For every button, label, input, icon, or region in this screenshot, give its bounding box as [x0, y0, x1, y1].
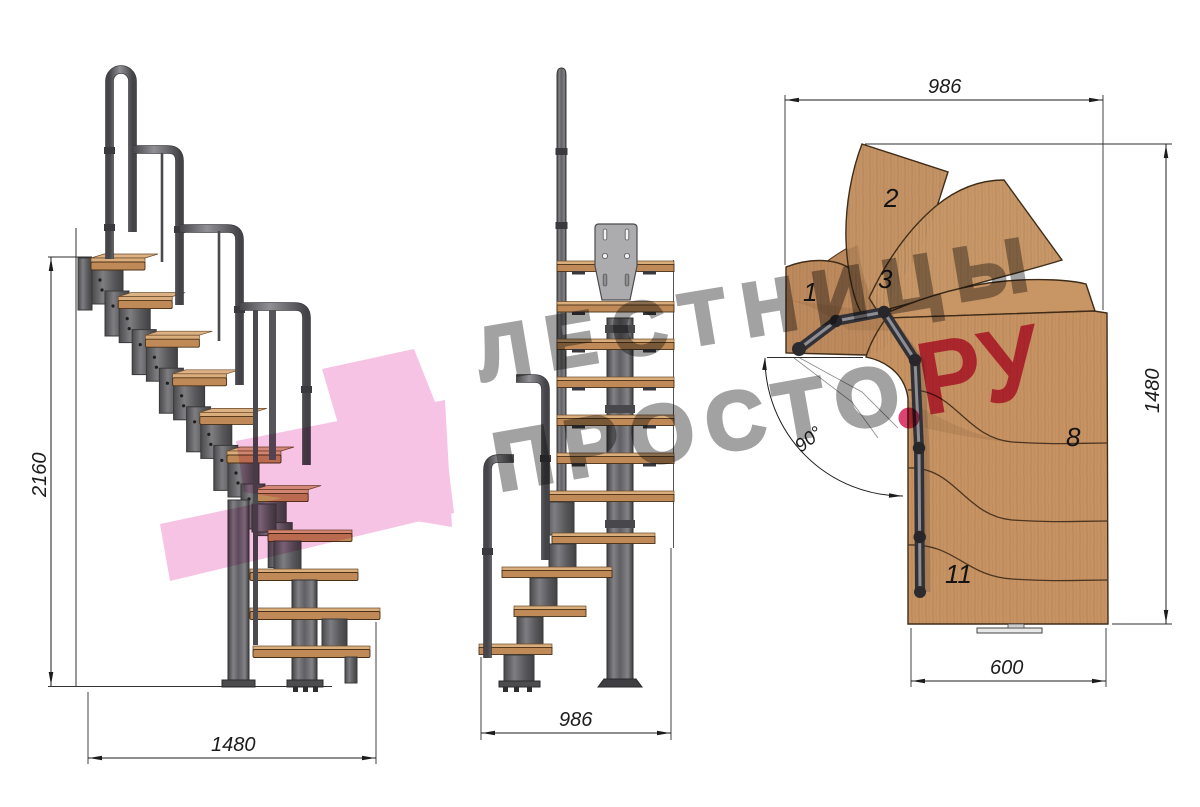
- svg-text:2160: 2160: [29, 453, 51, 499]
- svg-text:1480: 1480: [211, 734, 256, 756]
- svg-text:2: 2: [883, 183, 899, 213]
- svg-text:11: 11: [945, 559, 972, 589]
- svg-text:600: 600: [990, 657, 1023, 679]
- svg-text:1480: 1480: [1142, 369, 1164, 414]
- svg-text:986: 986: [559, 709, 593, 731]
- svg-text:8: 8: [1066, 422, 1081, 452]
- svg-text:986: 986: [928, 76, 962, 98]
- svg-text:РУ: РУ: [908, 302, 1051, 438]
